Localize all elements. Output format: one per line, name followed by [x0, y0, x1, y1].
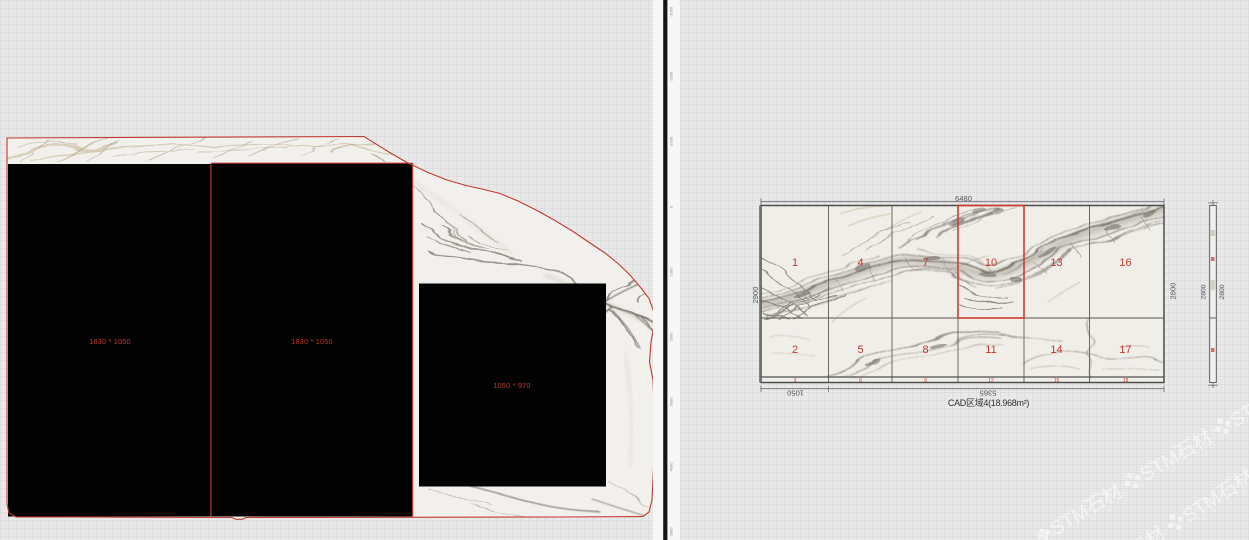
- svg-text:2900: 2900: [751, 287, 760, 304]
- svg-text:2800: 2800: [1200, 284, 1207, 299]
- svg-text:9: 9: [924, 378, 927, 384]
- svg-text:12: 12: [988, 378, 994, 384]
- svg-text:2800: 2800: [1169, 283, 1178, 300]
- svg-text:3: 3: [794, 378, 797, 384]
- svg-text:-1000: -1000: [669, 136, 674, 147]
- svg-text:4000: 4000: [669, 462, 674, 472]
- svg-text:10: 10: [985, 257, 997, 269]
- svg-text:1830 * 1050: 1830 * 1050: [291, 337, 333, 346]
- svg-text:7: 7: [922, 257, 928, 269]
- svg-text:16: 16: [1119, 257, 1131, 269]
- svg-text:6480: 6480: [955, 194, 972, 203]
- svg-text:11: 11: [985, 344, 996, 356]
- svg-text:5365: 5365: [980, 388, 997, 397]
- svg-text:3000: 3000: [669, 397, 674, 407]
- svg-text:1000: 1000: [669, 267, 674, 277]
- svg-text:1050: 1050: [787, 388, 804, 397]
- svg-text:5: 5: [857, 344, 863, 356]
- svg-text:2: 2: [792, 344, 798, 356]
- svg-text:13: 13: [1050, 257, 1062, 269]
- svg-text:4: 4: [857, 257, 863, 269]
- svg-text:14: 14: [1050, 344, 1062, 356]
- svg-text:2000: 2000: [669, 332, 674, 342]
- svg-text:18: 18: [1123, 378, 1129, 384]
- svg-text:8: 8: [922, 344, 928, 356]
- svg-text:15: 15: [1054, 378, 1060, 384]
- svg-text:6: 6: [859, 378, 862, 384]
- svg-text:CAD区域4(18.968m²): CAD区域4(18.968m²): [948, 397, 1030, 408]
- svg-text:-2000: -2000: [669, 71, 674, 82]
- svg-text:-3000: -3000: [669, 6, 674, 17]
- svg-text:1050 * 970: 1050 * 970: [493, 381, 530, 390]
- svg-text:5000: 5000: [669, 527, 674, 537]
- svg-text:17: 17: [1119, 344, 1131, 356]
- svg-text:❖STM石材 ❖STM石材 ❖STM石材: ❖STM石材 ❖STM石材 ❖STM石材: [1031, 372, 1249, 540]
- svg-text:1: 1: [792, 257, 798, 269]
- svg-text:1830 * 1050: 1830 * 1050: [89, 337, 131, 346]
- svg-text:2800: 2800: [1219, 284, 1226, 299]
